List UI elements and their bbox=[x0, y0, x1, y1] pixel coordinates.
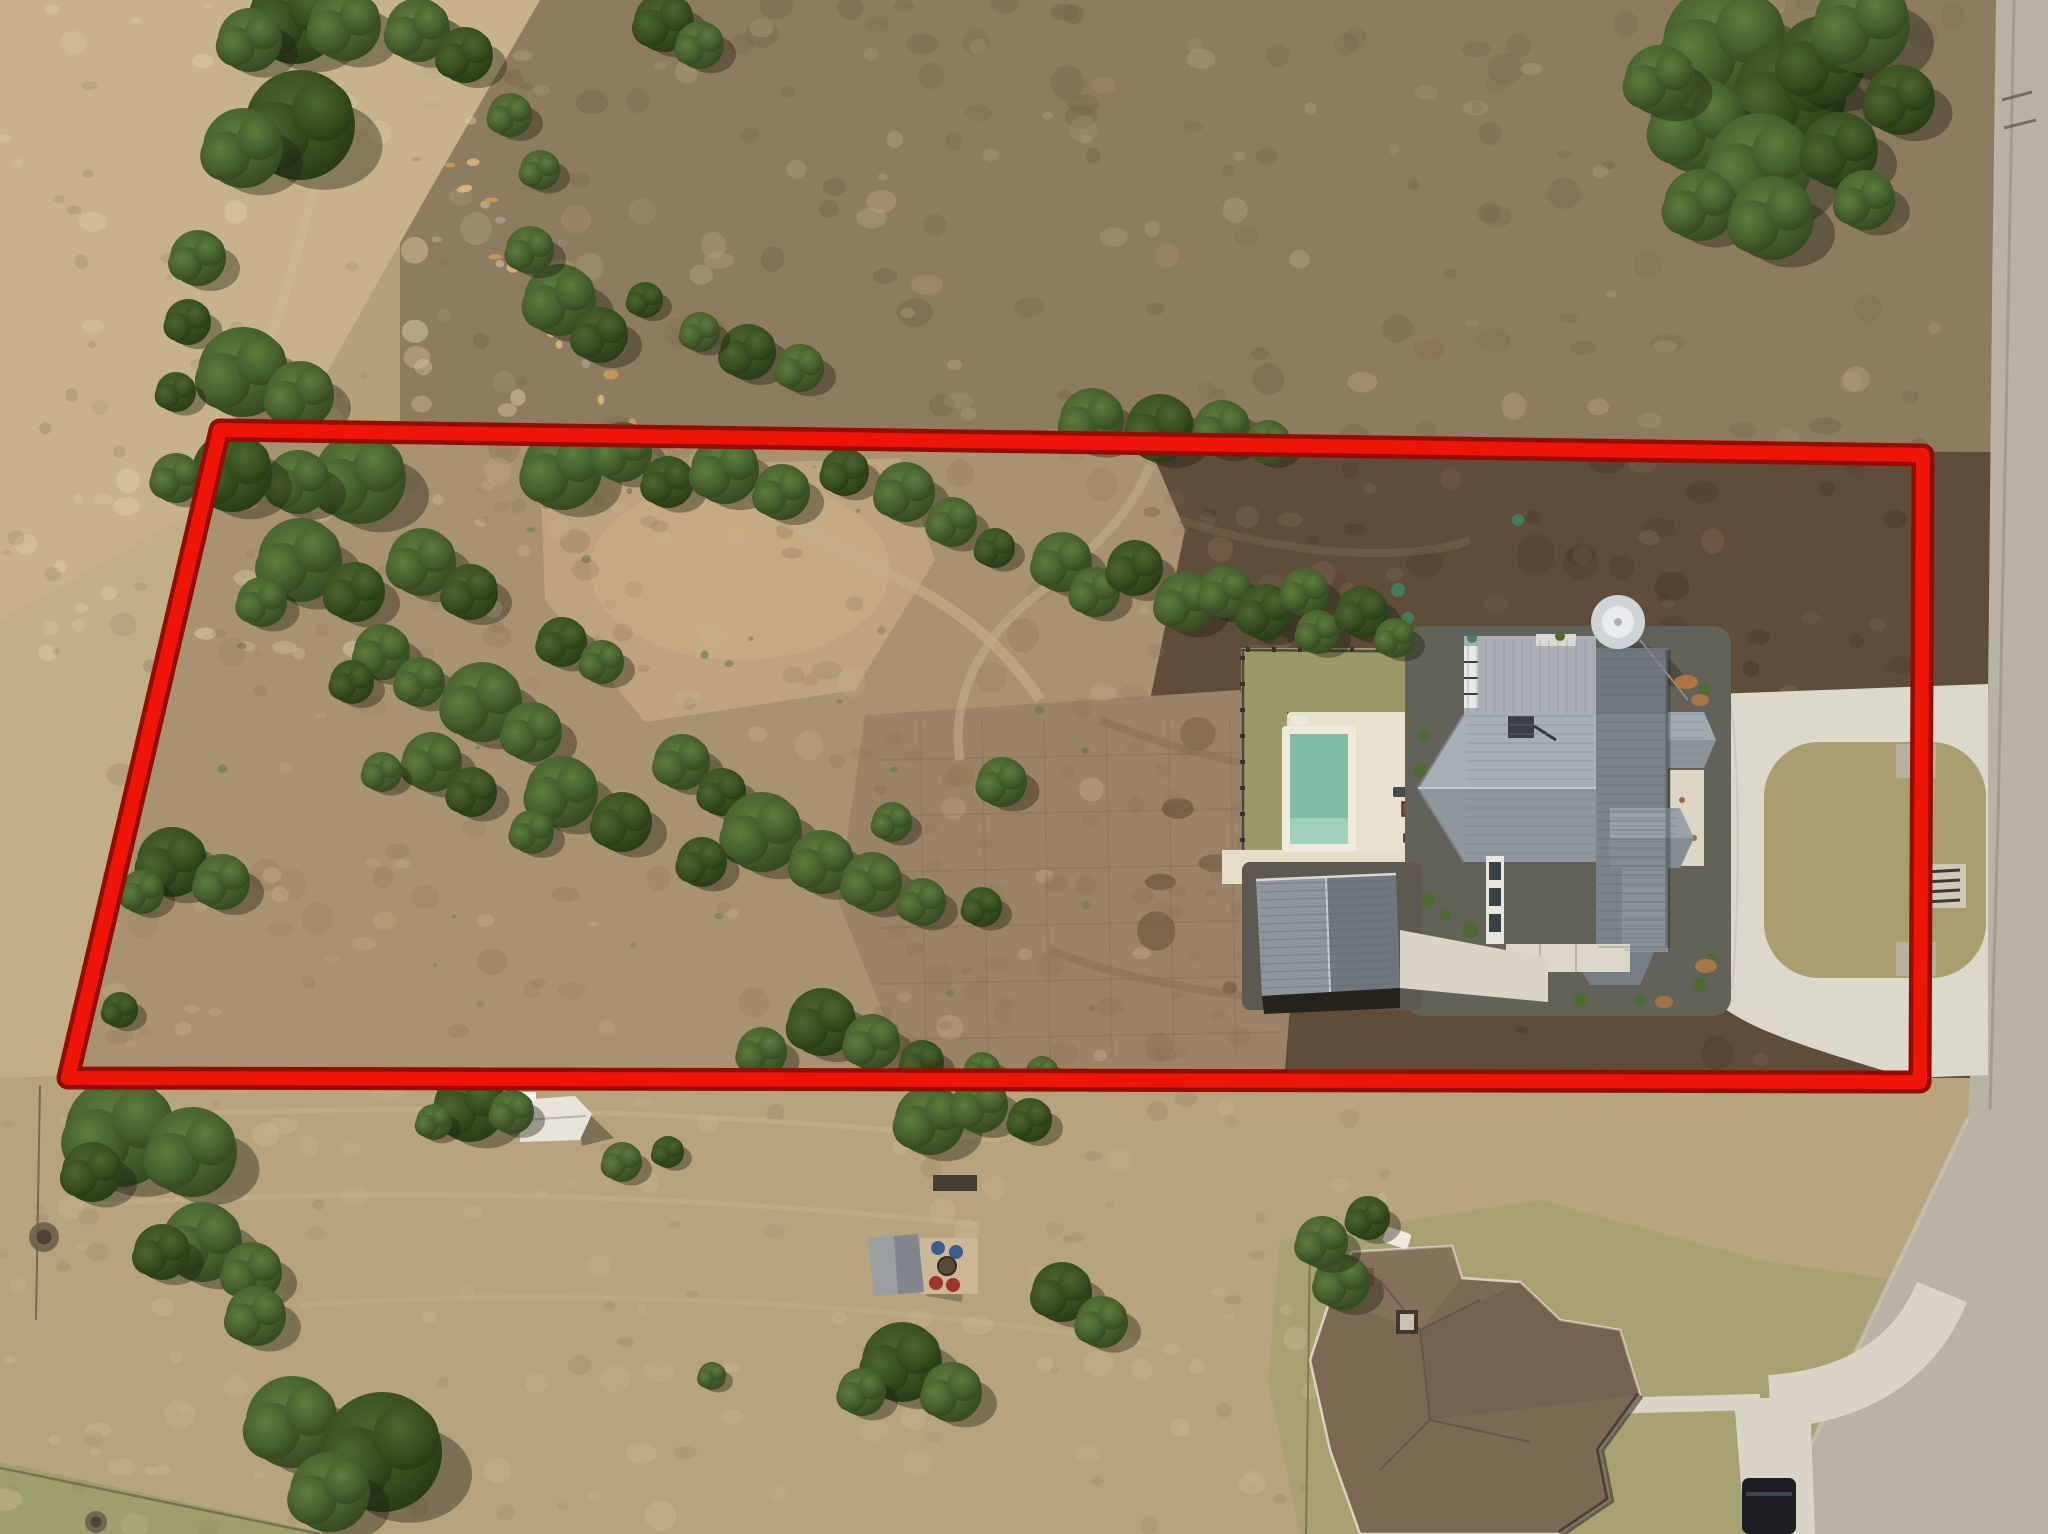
fire-pit bbox=[938, 1257, 956, 1275]
mottle-blob bbox=[1133, 947, 1151, 959]
tree bbox=[139, 874, 163, 898]
mottle-blob bbox=[1007, 618, 1039, 652]
mottle-blob bbox=[812, 661, 843, 679]
mottle-blob bbox=[351, 937, 377, 950]
mottle-blob bbox=[552, 887, 580, 902]
mottle-blob bbox=[45, 5, 60, 14]
mottle-blob bbox=[184, 1004, 200, 1013]
mottle-blob bbox=[1147, 1100, 1168, 1121]
planting bbox=[1467, 633, 1477, 643]
mottle-blob bbox=[1100, 227, 1128, 246]
mottle-blob bbox=[493, 371, 515, 394]
mottle-blob bbox=[346, 261, 358, 271]
mottle-blob bbox=[533, 85, 549, 95]
mottle-blob bbox=[1198, 381, 1216, 400]
tree bbox=[293, 456, 328, 491]
mottle-blob bbox=[34, 1213, 49, 1222]
mottle-blob bbox=[669, 1221, 681, 1229]
tree bbox=[416, 662, 444, 690]
bay-window-pane bbox=[1489, 888, 1501, 906]
mottle-blob bbox=[517, 377, 527, 387]
mottle-blob bbox=[113, 445, 126, 457]
mottle-blob bbox=[1166, 905, 1183, 920]
mottle-blob bbox=[1342, 462, 1358, 479]
mottle-blob bbox=[134, 583, 147, 591]
tree bbox=[466, 570, 497, 601]
tree bbox=[696, 26, 722, 52]
shrub bbox=[1413, 763, 1427, 777]
tree bbox=[992, 532, 1014, 554]
mottle-blob bbox=[1148, 643, 1165, 658]
mottle-blob bbox=[1506, 33, 1531, 58]
mottle-blob bbox=[1140, 1516, 1157, 1534]
tree bbox=[697, 316, 719, 338]
tree bbox=[509, 1094, 533, 1118]
mottle-blob bbox=[1071, 1232, 1084, 1242]
mottle-blob bbox=[911, 275, 943, 295]
mottle-blob bbox=[1389, 144, 1399, 155]
mottle-blob bbox=[152, 1298, 175, 1317]
mottle-blob bbox=[88, 341, 96, 348]
mottle-blob bbox=[268, 922, 293, 937]
tree bbox=[324, 1460, 368, 1504]
mottle-blob bbox=[1416, 420, 1436, 438]
mottle-blob bbox=[1126, 741, 1147, 752]
mottle-blob bbox=[1248, 1250, 1265, 1259]
mottle-blob bbox=[982, 1176, 1006, 1200]
mottle-blob bbox=[887, 131, 903, 148]
tree bbox=[417, 535, 454, 572]
tree bbox=[948, 1368, 981, 1401]
mottle-blob bbox=[1701, 529, 1724, 554]
mottle-blob bbox=[1940, 4, 1965, 28]
fence-post bbox=[1240, 682, 1245, 686]
mottle-blob bbox=[1092, 77, 1116, 94]
mottle-blob bbox=[92, 400, 109, 415]
tree bbox=[710, 1365, 725, 1380]
mottle-blob bbox=[1081, 748, 1089, 754]
mottle-blob bbox=[253, 1472, 266, 1479]
mottle-blob bbox=[113, 497, 139, 516]
mottle-blob bbox=[1014, 297, 1045, 317]
mottle-blob bbox=[1042, 112, 1053, 119]
tree bbox=[237, 116, 281, 160]
mottle-blob bbox=[1224, 1314, 1235, 1320]
mottle-blob bbox=[90, 1448, 101, 1456]
tree bbox=[353, 441, 404, 492]
mottle-blob bbox=[202, 2, 213, 8]
mottle-blob bbox=[192, 54, 214, 69]
mottle-blob bbox=[218, 638, 246, 667]
mottle-blob bbox=[67, 206, 81, 215]
tree bbox=[1895, 72, 1934, 111]
tree bbox=[1655, 52, 1694, 91]
mottle-blob bbox=[890, 767, 899, 772]
mottle-blob bbox=[787, 160, 807, 179]
planting bbox=[1391, 583, 1405, 597]
mottle-blob bbox=[945, 132, 962, 151]
tree bbox=[373, 1404, 439, 1470]
mottle-blob bbox=[1382, 315, 1413, 343]
mottle-blob bbox=[900, 1406, 925, 1430]
rock bbox=[598, 395, 604, 405]
mottle-blob bbox=[1131, 887, 1154, 904]
mottle-blob bbox=[941, 797, 967, 819]
mottle-blob bbox=[153, 1465, 171, 1476]
tree bbox=[1695, 176, 1735, 216]
mottle-blob bbox=[557, 1500, 568, 1510]
mottle-blob bbox=[1849, 634, 1864, 647]
mottle-blob bbox=[1119, 685, 1147, 701]
tree bbox=[796, 349, 822, 375]
mottle-blob bbox=[1210, 1009, 1227, 1022]
mottle-blob bbox=[271, 887, 288, 903]
mottle-blob bbox=[524, 679, 539, 690]
mottle-blob bbox=[878, 174, 888, 181]
mottle-blob bbox=[587, 1255, 611, 1277]
landscape-rocks bbox=[1691, 694, 1709, 706]
mottle-blob bbox=[1225, 1115, 1238, 1127]
mottle-blob bbox=[411, 885, 439, 910]
mottle-blob bbox=[74, 254, 88, 269]
mottle-blob bbox=[1131, 1358, 1152, 1380]
pool bbox=[1282, 716, 1356, 852]
mottle-blob bbox=[84, 1431, 103, 1446]
mottle-blob bbox=[415, 370, 424, 375]
mottle-blob bbox=[877, 626, 886, 634]
tree bbox=[413, 4, 448, 39]
mottle-blob bbox=[1557, 151, 1573, 159]
mottle-blob bbox=[1573, 546, 1592, 565]
mottle-blob bbox=[900, 308, 914, 318]
mottle-blob bbox=[1571, 341, 1597, 355]
tree bbox=[507, 97, 531, 121]
mottle-blob bbox=[1343, 524, 1366, 536]
mottle-blob bbox=[888, 924, 908, 940]
red-chair bbox=[929, 1276, 943, 1290]
mottle-blob bbox=[637, 1304, 647, 1314]
mottle-blob bbox=[254, 685, 267, 697]
mottle-blob bbox=[946, 989, 954, 997]
mottle-blob bbox=[1415, 86, 1438, 100]
mottle-blob bbox=[1663, 599, 1675, 609]
courtyard-planter bbox=[1679, 797, 1685, 803]
mottle-blob bbox=[39, 422, 51, 434]
mottle-blob bbox=[1205, 889, 1217, 897]
tree bbox=[1218, 406, 1249, 437]
mottle-blob bbox=[424, 101, 440, 110]
mottle-blob bbox=[373, 867, 394, 889]
mottle-blob bbox=[923, 824, 938, 834]
mottle-blob bbox=[866, 190, 896, 213]
mottle-blob bbox=[1516, 1026, 1529, 1034]
mottle-blob bbox=[944, 393, 975, 408]
mottle-blob bbox=[617, 1337, 633, 1347]
pool-equipment-box bbox=[1291, 716, 1307, 725]
mottle-blob bbox=[246, 551, 255, 558]
mottle-blob bbox=[316, 624, 329, 637]
mottle-blob bbox=[126, 1040, 137, 1047]
mottle-blob bbox=[893, 0, 915, 12]
mottle-blob bbox=[714, 913, 723, 920]
mottle-blob bbox=[1079, 777, 1104, 801]
mottle-blob bbox=[498, 403, 517, 417]
mottle-blob bbox=[1086, 468, 1118, 502]
tree bbox=[428, 738, 461, 771]
mottle-blob bbox=[1076, 874, 1096, 895]
mottle-blob bbox=[504, 70, 523, 87]
tree bbox=[1301, 573, 1327, 599]
mottle-blob bbox=[641, 516, 659, 528]
mottle-blob bbox=[1183, 122, 1204, 133]
mottle-blob bbox=[224, 1374, 249, 1397]
mottle-blob bbox=[1414, 340, 1445, 360]
mottle-blob bbox=[164, 1399, 195, 1429]
tree bbox=[379, 756, 401, 778]
mottle-blob bbox=[964, 983, 988, 1001]
mottle-blob bbox=[34, 1203, 45, 1211]
rock bbox=[495, 217, 506, 224]
shrub bbox=[1421, 893, 1435, 907]
mottle-blob bbox=[1139, 606, 1149, 615]
gazebo-firepit bbox=[868, 1234, 978, 1302]
mottle-blob bbox=[1229, 1027, 1252, 1048]
shrub bbox=[1462, 922, 1478, 938]
mottle-blob bbox=[1251, 347, 1269, 360]
mottle-blob bbox=[947, 459, 974, 487]
mottle-blob bbox=[135, 469, 146, 477]
tree bbox=[1358, 591, 1387, 620]
mottle-blob bbox=[1685, 481, 1720, 504]
mottle-blob bbox=[604, 1302, 615, 1309]
mottle-blob bbox=[511, 498, 527, 513]
mottle-blob bbox=[1517, 534, 1555, 575]
mottle-blob bbox=[302, 976, 315, 990]
fence-post bbox=[1240, 734, 1245, 738]
mottle-blob bbox=[175, 1022, 192, 1036]
mottle-blob bbox=[588, 921, 598, 926]
tree bbox=[1027, 1102, 1051, 1126]
mottle-blob bbox=[1210, 869, 1223, 882]
tree bbox=[294, 526, 340, 572]
mottle-blob bbox=[983, 148, 999, 161]
mottle-blob bbox=[75, 603, 88, 613]
mottle-blob bbox=[884, 732, 903, 745]
mottle-blob bbox=[12, 158, 23, 167]
mottle-blob bbox=[465, 116, 476, 125]
tree bbox=[252, 1292, 285, 1325]
mottle-blob bbox=[1086, 148, 1101, 164]
mottle-blob bbox=[437, 308, 450, 321]
tree bbox=[196, 1210, 240, 1254]
mottle-blob bbox=[1526, 510, 1541, 525]
mottle-blob bbox=[208, 1008, 221, 1017]
car bbox=[1742, 1478, 1796, 1534]
mottle-blob bbox=[838, 667, 866, 697]
fence-post bbox=[1272, 647, 1276, 652]
mottle-blob bbox=[463, 1206, 483, 1219]
tree bbox=[528, 708, 561, 741]
backyard-lawn bbox=[1241, 648, 1287, 858]
tree bbox=[1131, 546, 1162, 577]
tree bbox=[558, 622, 586, 650]
tree bbox=[529, 814, 553, 838]
mottle-blob bbox=[1236, 506, 1259, 529]
mottle-blob bbox=[401, 237, 428, 264]
mottle-blob bbox=[432, 494, 443, 505]
mottle-blob bbox=[1441, 468, 1461, 490]
shrub bbox=[1418, 729, 1430, 741]
tree bbox=[1834, 120, 1876, 162]
mottle-blob bbox=[83, 170, 94, 178]
mottle-blob bbox=[1072, 696, 1093, 718]
mottle-blob bbox=[1140, 701, 1150, 706]
mottle-blob bbox=[748, 636, 753, 641]
mottle-blob bbox=[998, 997, 1015, 1008]
mottle-blob bbox=[629, 199, 657, 225]
mottle-blob bbox=[82, 81, 98, 90]
rock bbox=[461, 185, 472, 191]
mottle-blob bbox=[462, 819, 488, 837]
mottle-blob bbox=[1653, 340, 1677, 353]
mottle-blob bbox=[433, 963, 438, 967]
mottle-blob bbox=[473, 333, 489, 349]
mottle-blob bbox=[178, 1405, 193, 1413]
mottle-blob bbox=[1379, 1169, 1389, 1178]
tree bbox=[173, 376, 195, 398]
mottle-blob bbox=[1386, 567, 1403, 580]
landscape-rocks bbox=[1655, 996, 1673, 1008]
tree bbox=[979, 891, 1001, 913]
mottle-blob bbox=[53, 195, 65, 203]
mottle-blob bbox=[108, 1459, 137, 1476]
tree bbox=[461, 33, 492, 64]
mottle-blob bbox=[674, 690, 701, 706]
mottle-blob bbox=[510, 389, 526, 405]
mottle-blob bbox=[1188, 951, 1200, 963]
tree bbox=[258, 582, 286, 610]
mottle-blob bbox=[144, 1466, 154, 1475]
mottle-blob bbox=[1609, 555, 1634, 580]
mottle-blob bbox=[7, 530, 24, 545]
mottle-blob bbox=[970, 39, 987, 56]
mottle-blob bbox=[568, 172, 590, 188]
mottle-blob bbox=[437, 260, 448, 267]
mottle-blob bbox=[1187, 38, 1202, 52]
mottle-blob bbox=[1175, 1047, 1188, 1059]
tree bbox=[919, 1044, 943, 1068]
mottle-blob bbox=[1343, 27, 1366, 51]
mottle-blob bbox=[962, 967, 972, 974]
mottle-blob bbox=[312, 1200, 324, 1210]
tree bbox=[185, 1116, 235, 1166]
rock bbox=[489, 254, 503, 259]
tree bbox=[698, 842, 726, 870]
mottle-blob bbox=[49, 1434, 61, 1446]
tree bbox=[526, 231, 552, 257]
mottle-blob bbox=[701, 651, 709, 659]
tree bbox=[596, 313, 627, 344]
mottle-blob bbox=[452, 914, 457, 918]
tree bbox=[1087, 394, 1122, 429]
mottle-blob bbox=[1104, 1201, 1113, 1208]
mottle-blob bbox=[279, 762, 293, 773]
fence-post bbox=[1240, 812, 1245, 816]
mottle-blob bbox=[568, 1355, 592, 1375]
mottle-blob bbox=[9, 1278, 27, 1294]
tree bbox=[349, 664, 373, 688]
mottle-blob bbox=[1046, 1222, 1064, 1236]
mottle-blob bbox=[306, 1226, 326, 1239]
shrub bbox=[1573, 993, 1587, 1007]
mottle-blob bbox=[947, 360, 962, 370]
tree bbox=[185, 304, 210, 329]
mottle-blob bbox=[845, 596, 863, 611]
mottle-blob bbox=[801, 675, 819, 687]
mottle-blob bbox=[919, 62, 944, 89]
mottle-blob bbox=[1255, 1211, 1265, 1222]
mottle-blob bbox=[1143, 507, 1160, 517]
mottle-blob bbox=[1729, 422, 1757, 438]
mottle-blob bbox=[101, 586, 118, 600]
fence-post bbox=[1240, 760, 1245, 764]
mottle-blob bbox=[1222, 165, 1235, 177]
mottle-blob bbox=[1175, 1090, 1198, 1106]
mottle-blob bbox=[1050, 1367, 1060, 1374]
shrub bbox=[1634, 994, 1646, 1006]
mottle-blob bbox=[588, 1491, 599, 1500]
mottle-blob bbox=[1050, 4, 1077, 21]
mottle-blob bbox=[1870, 618, 1886, 631]
mottle-blob bbox=[795, 731, 823, 761]
tree bbox=[918, 883, 944, 909]
mottle-blob bbox=[496, 260, 505, 267]
mottle-blob bbox=[299, 1135, 320, 1157]
fence-post bbox=[1350, 647, 1354, 652]
garage-roof-east bbox=[1326, 874, 1400, 992]
mottle-blob bbox=[905, 942, 924, 956]
mottle-blob bbox=[325, 955, 340, 963]
water-tank-cap bbox=[1614, 618, 1622, 626]
mottle-blob bbox=[1463, 100, 1489, 115]
tree bbox=[117, 996, 137, 1016]
mottle-blob bbox=[761, 246, 785, 271]
deck-chair bbox=[1393, 787, 1407, 797]
mottle-blob bbox=[1753, 1053, 1769, 1066]
mottle-blob bbox=[72, 618, 86, 632]
landscape-rocks bbox=[1695, 959, 1717, 973]
dead-bush bbox=[91, 1517, 102, 1528]
tree bbox=[664, 461, 693, 490]
mottle-blob bbox=[1060, 766, 1075, 779]
tree bbox=[841, 453, 867, 479]
fence-post bbox=[1240, 786, 1245, 790]
mottle-blob bbox=[1035, 706, 1045, 713]
tree bbox=[758, 1032, 786, 1060]
mottle-blob bbox=[690, 265, 713, 285]
shrub bbox=[1555, 631, 1565, 641]
tree bbox=[901, 468, 934, 501]
mottle-blob bbox=[1266, 44, 1289, 67]
aerial-photo bbox=[0, 0, 2048, 1534]
tree bbox=[619, 1146, 641, 1168]
mottle-blob bbox=[224, 200, 246, 224]
mottle-blob bbox=[8, 1486, 17, 1491]
mottle-blob bbox=[924, 962, 953, 994]
mottle-blob bbox=[1284, 1327, 1308, 1351]
mottle-blob bbox=[267, 1117, 298, 1134]
mottle-blob bbox=[719, 1409, 744, 1424]
